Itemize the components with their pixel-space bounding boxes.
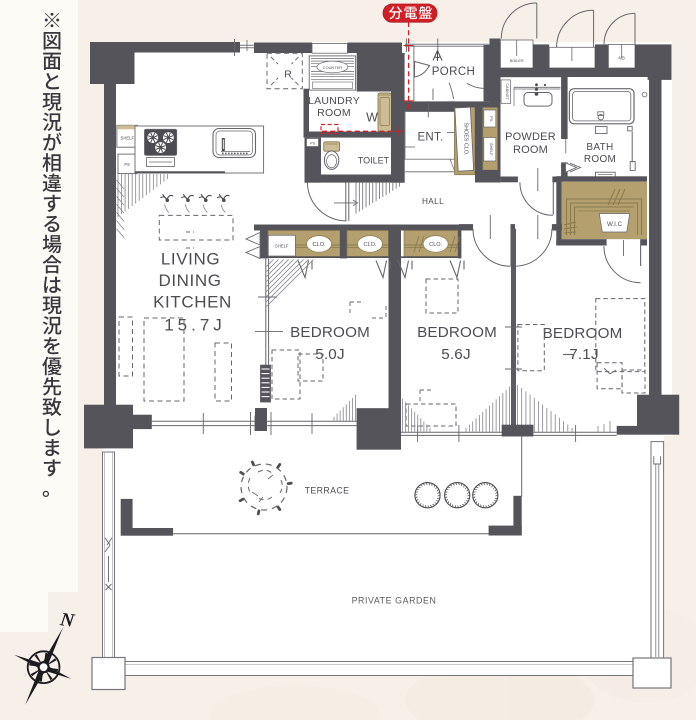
svg-text:7.1J: 7.1J [569, 346, 599, 363]
svg-text:PS: PS [310, 142, 316, 146]
svg-text:W: W [366, 111, 378, 125]
svg-text:LIVING: LIVING [161, 250, 220, 269]
svg-text:CLO.: CLO. [363, 242, 377, 248]
svg-text:LAUNDRY: LAUNDRY [308, 95, 360, 107]
svg-text:ENT.: ENT. [417, 132, 443, 144]
svg-text:SHOES CLO.: SHOES CLO. [463, 123, 469, 156]
svg-text:CLO.: CLO. [312, 242, 326, 248]
svg-text:BOILER: BOILER [510, 59, 524, 63]
svg-text:R: R [284, 69, 292, 81]
svg-text:HALL: HALL [422, 197, 444, 206]
svg-text:SHELF: SHELF [121, 136, 135, 141]
svg-text:TERRACE: TERRACE [305, 486, 350, 496]
svg-text:W.I.C: W.I.C [607, 221, 623, 228]
svg-text:DINING: DINING [158, 271, 221, 290]
svg-text:SHELF: SHELF [489, 143, 494, 156]
svg-text:BATH: BATH [586, 142, 613, 153]
svg-text:ROOM: ROOM [584, 154, 616, 165]
svg-text:CLO.: CLO. [429, 242, 443, 248]
svg-text:5.6J: 5.6J [441, 346, 471, 363]
svg-text:CABINET: CABINET [505, 83, 509, 100]
svg-text:KITCHEN: KITCHEN [153, 293, 232, 312]
svg-text:PRIVATE GARDEN: PRIVATE GARDEN [352, 596, 437, 606]
svg-text:BEDROOM: BEDROOM [543, 325, 623, 342]
svg-text:PS: PS [489, 116, 494, 122]
svg-text:SHELF: SHELF [275, 244, 289, 249]
svg-text:COUNTER: COUNTER [323, 65, 342, 70]
svg-text:ROOM: ROOM [317, 107, 351, 119]
svg-text:POWDER: POWDER [505, 131, 556, 143]
svg-text:ROOM: ROOM [513, 144, 548, 156]
svg-text:TOILET: TOILET [358, 156, 390, 166]
svg-text:BEDROOM: BEDROOM [290, 324, 370, 341]
svg-text:5.0J: 5.0J [315, 346, 345, 363]
svg-text:BEDROOM: BEDROOM [417, 324, 497, 341]
svg-text:PS: PS [124, 162, 130, 167]
svg-text:PORCH: PORCH [432, 66, 476, 78]
